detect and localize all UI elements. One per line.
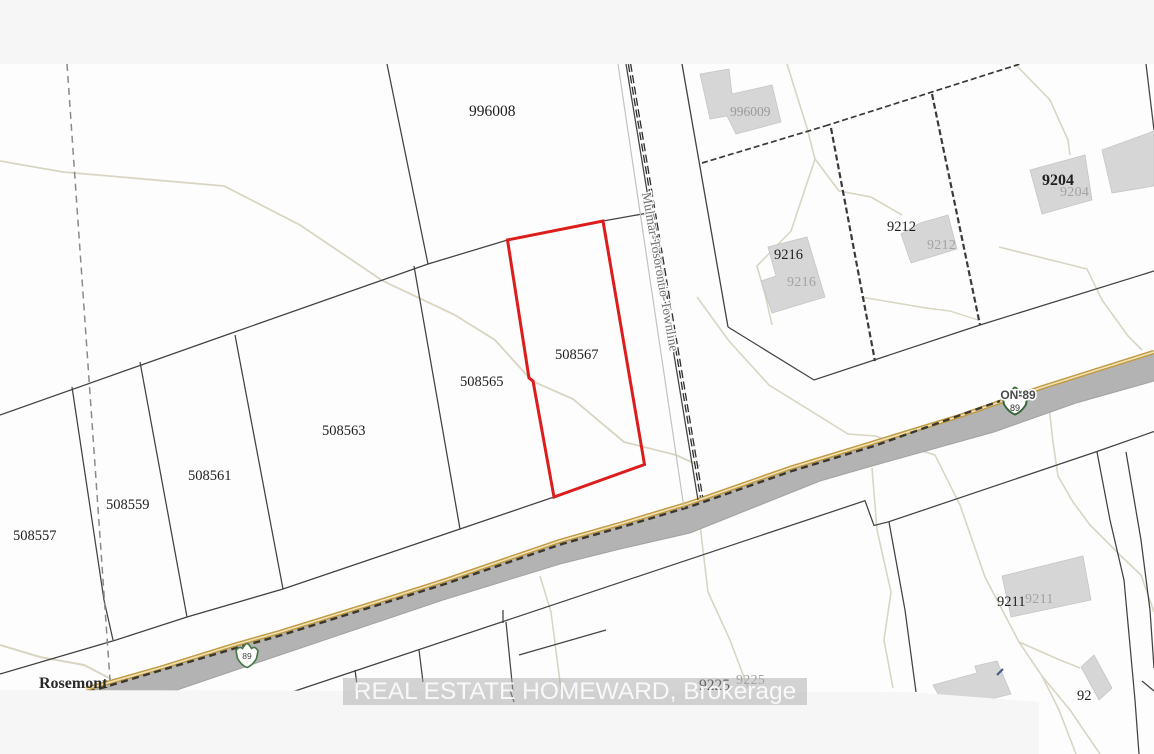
svg-text:508567: 508567 — [555, 347, 599, 363]
svg-text:508557: 508557 — [13, 528, 57, 544]
svg-text:9212: 9212 — [927, 238, 956, 253]
svg-text:9211: 9211 — [1025, 592, 1054, 607]
svg-text:508565: 508565 — [460, 374, 504, 390]
svg-text:508559: 508559 — [106, 497, 150, 513]
svg-text:89: 89 — [242, 651, 252, 661]
svg-text:996008: 996008 — [469, 103, 516, 120]
svg-text:996009: 996009 — [730, 104, 771, 119]
svg-text:89: 89 — [1010, 403, 1020, 413]
svg-text:ON-89: ON-89 — [1000, 388, 1036, 402]
svg-text:9216: 9216 — [774, 247, 803, 263]
svg-text:Rosemont: Rosemont — [39, 675, 108, 692]
svg-text:508563: 508563 — [322, 423, 366, 439]
svg-text:9211: 9211 — [997, 594, 1025, 610]
svg-text:92: 92 — [1077, 688, 1092, 704]
svg-text:REAL ESTATE HOMEWARD, Brokerag: REAL ESTATE HOMEWARD, Brokerage — [354, 678, 796, 705]
svg-text:9212: 9212 — [887, 219, 916, 235]
svg-text:9204: 9204 — [1060, 185, 1089, 200]
svg-text:508561: 508561 — [188, 468, 232, 484]
svg-text:9216: 9216 — [787, 275, 816, 290]
